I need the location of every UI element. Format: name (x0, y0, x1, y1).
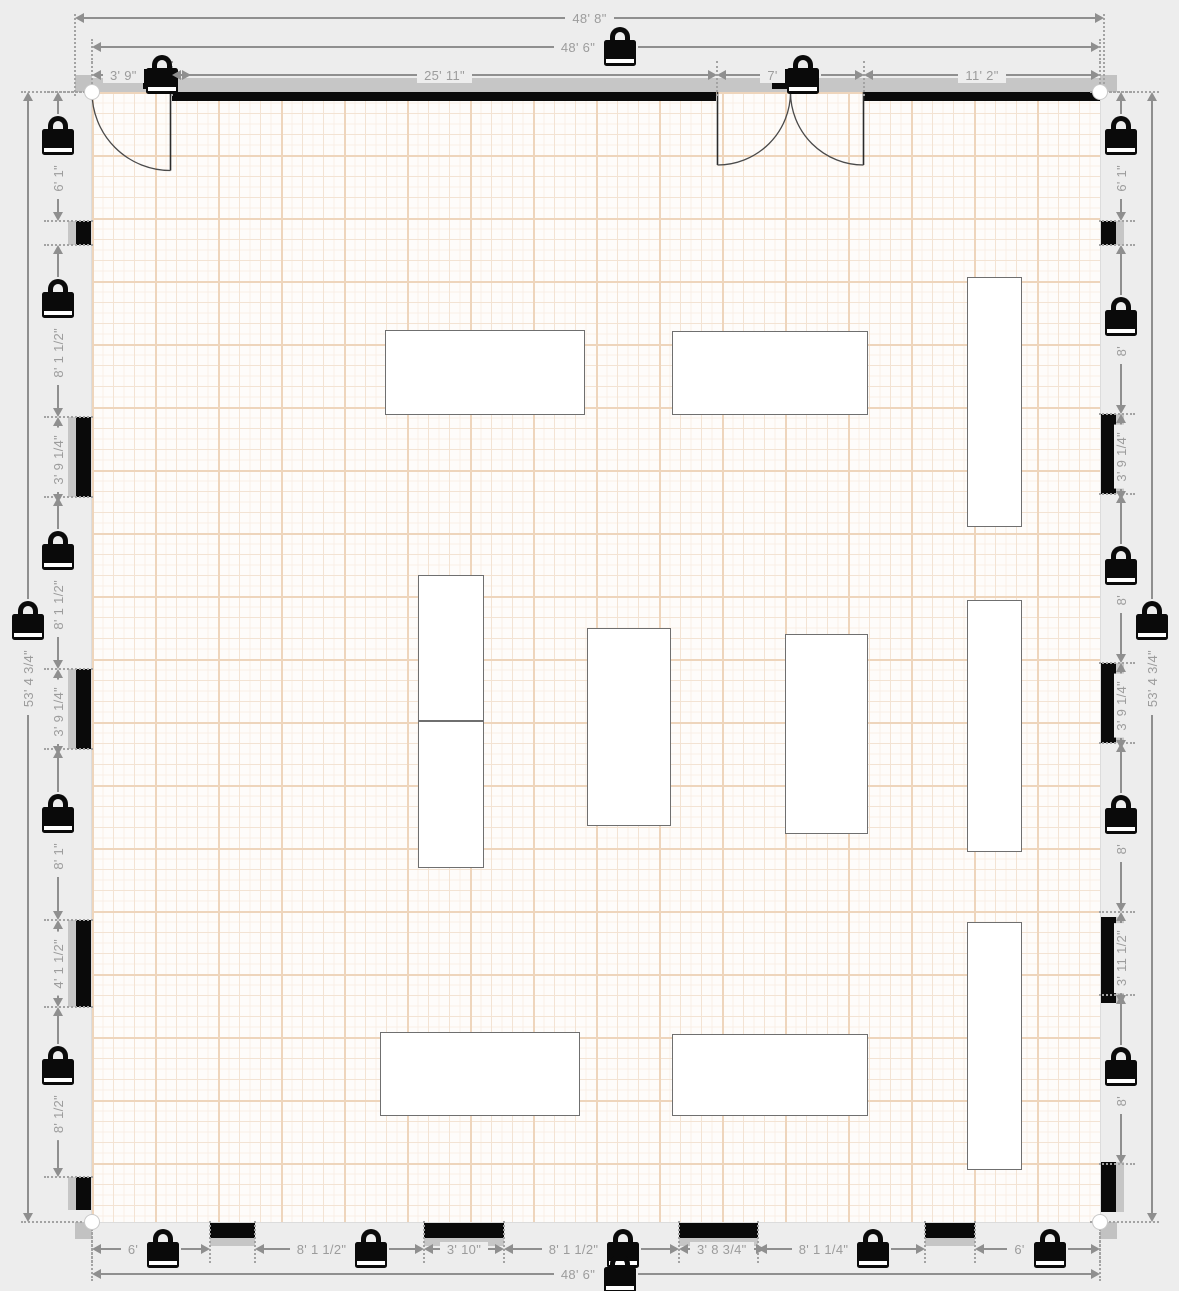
lock-body (1105, 808, 1137, 834)
lock-icon[interactable] (1105, 546, 1137, 586)
dimension-label[interactable]: 3' 11 1/2" (1114, 923, 1129, 993)
dimension-label[interactable]: 48' 6" (554, 40, 602, 55)
dimension-line (767, 1248, 792, 1250)
dimension-left-6: 8' 1" (44, 749, 72, 920)
dimension-line (1151, 101, 1153, 599)
furniture-rect[interactable] (785, 634, 868, 834)
lock-body (1105, 129, 1137, 155)
dimension-line (488, 1248, 495, 1250)
arrowhead (53, 1168, 63, 1177)
dimension-label[interactable]: 8' 1 1/2" (51, 573, 66, 637)
dimension-top-2: 48' 6" (92, 33, 1100, 61)
arrowhead (1116, 995, 1126, 1004)
furniture-rect[interactable] (418, 721, 484, 868)
dimension-label[interactable]: 8' (1114, 1089, 1129, 1113)
dimension-line (821, 74, 855, 76)
arrowhead (23, 92, 33, 101)
arrowhead (201, 1244, 210, 1254)
furniture-rect[interactable] (587, 628, 671, 826)
arrowhead (495, 1244, 504, 1254)
dimension-label[interactable]: 48' 8" (565, 11, 613, 26)
dimension-label[interactable]: 3' 9 1/4" (1114, 674, 1129, 738)
dimension-line (1120, 862, 1122, 903)
arrowhead (53, 998, 63, 1007)
dimension-label[interactable]: 8' 1" (51, 836, 66, 877)
dimension-line (57, 1016, 59, 1044)
furniture-rect[interactable] (385, 330, 585, 415)
floor-plan-canvas: 48' 8"48' 6"3' 9"25' 11"7'11' 2"6'8' 1 1… (0, 0, 1179, 1291)
dimension-left-4: 8' 1 1/2" (44, 497, 72, 669)
arrowhead (855, 70, 864, 80)
dimension-line (57, 1140, 59, 1168)
dimension-line (984, 1248, 1007, 1250)
dimension-label[interactable]: 6' (1007, 1242, 1031, 1257)
arrowhead (1116, 405, 1126, 414)
lock-body (42, 292, 74, 318)
dimension-right-4: 8' (1107, 494, 1135, 663)
dimension-line (638, 46, 1091, 48)
dimension-right-6: 8' (1107, 743, 1135, 912)
arrowhead (53, 245, 63, 254)
lock-icon[interactable] (787, 55, 819, 95)
lock-body (1105, 310, 1137, 336)
dimension-line (1151, 715, 1153, 1213)
lock-body (604, 1267, 636, 1291)
dimension-label[interactable]: 53' 4 3/4" (21, 643, 36, 714)
arrowhead (975, 1244, 984, 1254)
lock-icon[interactable] (42, 116, 74, 156)
dimension-bottom-8: 48' 6" (92, 1260, 1100, 1288)
dimension-left-5: 3' 9 1/4" (44, 669, 72, 749)
arrowhead (92, 42, 101, 52)
dimension-right-9: 53' 4 3/4" (1138, 92, 1166, 1222)
arrowhead (1116, 912, 1126, 921)
dimension-line (641, 1248, 670, 1250)
dimension-label[interactable]: 8' (1114, 837, 1129, 861)
lock-icon[interactable] (42, 531, 74, 571)
dimension-label[interactable]: 8' 1/2" (51, 1088, 66, 1140)
wall-pier-shadow (925, 1238, 975, 1246)
dimension-label[interactable]: 8' 1 1/2" (51, 321, 66, 385)
lock-icon[interactable] (1136, 601, 1168, 641)
corner-handle[interactable] (1092, 84, 1108, 100)
dimension-line (433, 1248, 440, 1250)
dimension-line (57, 877, 59, 911)
lock-body (42, 1059, 74, 1085)
wall-top-segment[interactable] (864, 92, 1100, 101)
dimension-line (389, 1248, 415, 1250)
wall-pier[interactable] (76, 1177, 91, 1210)
lock-icon[interactable] (1105, 116, 1137, 156)
arrowhead (717, 70, 726, 80)
arrowhead (1095, 13, 1104, 23)
dimension-label[interactable]: 3' 9 1/4" (51, 680, 66, 744)
dimension-top-4: 25' 11" (172, 61, 717, 89)
furniture-rect[interactable] (967, 922, 1022, 1170)
dimension-line (181, 74, 417, 76)
dimension-line (101, 46, 554, 48)
dimension-bottom-4: 8' 1 1/2" (504, 1235, 679, 1263)
dimension-line (57, 637, 59, 660)
dimension-label[interactable]: 8' (1114, 339, 1129, 363)
wall-pier[interactable] (1101, 221, 1116, 245)
dimension-bottom-3: 3' 10" (424, 1235, 504, 1263)
arrowhead (1116, 245, 1126, 254)
arrowhead (75, 13, 84, 23)
dimension-line (1006, 74, 1091, 76)
dimension-line (27, 715, 29, 1213)
dimension-line (614, 17, 1095, 19)
dimension-line (57, 758, 59, 792)
furniture-rect[interactable] (967, 600, 1022, 852)
dimension-top-3: 3' 9" (92, 61, 172, 89)
dimension-left-8: 8' 1/2" (44, 1007, 72, 1177)
dimension-line (57, 101, 59, 114)
arrowhead (255, 1244, 264, 1254)
dimension-label[interactable]: 6' (121, 1242, 145, 1257)
wall-pier[interactable] (76, 920, 91, 1007)
dimension-label[interactable]: 3' 9 1/4" (1114, 425, 1129, 489)
lock-icon[interactable] (604, 1254, 636, 1291)
dimension-right-8: 8' (1107, 995, 1135, 1164)
dimension-line (264, 1248, 290, 1250)
arrowhead (23, 1213, 33, 1222)
dimension-top-6: 11' 2" (864, 61, 1100, 89)
dimension-top-5: 7' (717, 61, 864, 89)
dimension-line (891, 1248, 916, 1250)
dimension-line (1120, 199, 1122, 212)
arrowhead (864, 70, 873, 80)
dimension-label[interactable]: 6' 1" (1114, 158, 1129, 199)
lock-body (42, 807, 74, 833)
dimension-line (726, 74, 760, 76)
dimension-line (57, 254, 59, 277)
dimension-label[interactable]: 3' 10" (440, 1242, 488, 1257)
dimension-line (873, 74, 958, 76)
dimension-label[interactable]: 3' 9 1/4" (51, 428, 66, 492)
arrowhead (53, 497, 63, 506)
dimension-line (84, 17, 565, 19)
arrowhead (1147, 1213, 1157, 1222)
dimension-label[interactable]: 3' 8 3/4" (690, 1242, 754, 1257)
lock-icon[interactable] (42, 279, 74, 319)
dimension-line (1120, 101, 1122, 114)
arrowhead (53, 669, 63, 678)
arrowhead (53, 408, 63, 417)
wall-pier-shadow (68, 1177, 76, 1210)
lock-body (1105, 1060, 1137, 1086)
dimension-label[interactable]: 8' 1 1/4" (792, 1242, 856, 1257)
dimension-left-7: 4' 1 1/2" (44, 920, 72, 1007)
arrowhead (1116, 494, 1126, 503)
arrowhead (758, 1244, 767, 1254)
arrowhead (1116, 92, 1126, 101)
arrowhead (1091, 42, 1100, 52)
dimension-right-3: 3' 9 1/4" (1107, 414, 1135, 494)
dimension-bottom-5: 3' 8 3/4" (679, 1235, 758, 1263)
dimension-label[interactable]: 6' 1" (51, 158, 66, 199)
wall-pier[interactable] (925, 1223, 975, 1238)
furniture-rect[interactable] (672, 1034, 868, 1116)
arrowhead (92, 70, 101, 80)
arrowhead (1116, 663, 1126, 672)
wall-pier[interactable] (76, 669, 91, 749)
arrowhead (53, 1007, 63, 1016)
dimension-line (1120, 503, 1122, 544)
lock-icon[interactable] (12, 601, 44, 641)
arrowhead (1116, 903, 1126, 912)
dimension-left-1: 6' 1" (44, 92, 72, 221)
wall-pier[interactable] (210, 1223, 255, 1238)
arrowhead (1116, 212, 1126, 221)
wall-pier[interactable] (76, 417, 91, 497)
dimension-top-1: 48' 8" (75, 4, 1104, 32)
dimension-bottom-7: 6' (975, 1235, 1100, 1263)
dimension-line (57, 506, 59, 529)
lock-icon[interactable] (42, 794, 74, 834)
arrowhead (1091, 1269, 1100, 1279)
dimension-line (101, 1248, 121, 1250)
furniture-rect[interactable] (418, 575, 484, 721)
dimension-right-5: 3' 9 1/4" (1107, 663, 1135, 743)
arrowhead (679, 1244, 688, 1254)
arrowhead (1147, 92, 1157, 101)
corner-handle[interactable] (84, 84, 100, 100)
corner-handle[interactable] (1092, 1214, 1108, 1230)
arrowhead (53, 417, 63, 426)
wall-pier-shadow (1116, 1162, 1124, 1212)
dimension-line (57, 385, 59, 408)
dimension-left-9: 53' 4 3/4" (14, 92, 42, 1222)
dimension-line (1120, 752, 1122, 793)
dimension-line (1068, 1248, 1091, 1250)
dimension-line (1120, 364, 1122, 405)
dimension-label[interactable]: 11' 2" (958, 68, 1005, 83)
arrowhead (424, 1244, 433, 1254)
dimension-label[interactable]: 8' (1114, 588, 1129, 612)
arrowhead (53, 920, 63, 929)
arrowhead (415, 1244, 424, 1254)
wall-pier-shadow (1116, 221, 1124, 245)
lock-icon[interactable] (1105, 795, 1137, 835)
arrowhead (1091, 70, 1100, 80)
lock-icon[interactable] (1105, 1047, 1137, 1087)
arrowhead (1116, 654, 1126, 663)
dimension-line (1120, 1004, 1122, 1045)
dimension-line (472, 74, 708, 76)
arrowhead (1116, 1155, 1126, 1164)
dimension-bottom-2: 8' 1 1/2" (255, 1235, 424, 1263)
lock-icon[interactable] (42, 1046, 74, 1086)
arrowhead (916, 1244, 925, 1254)
dimension-line (57, 199, 59, 212)
arrowhead (92, 1269, 101, 1279)
arrowhead (53, 660, 63, 669)
arrowhead (1116, 414, 1126, 423)
arrowhead (1116, 743, 1126, 752)
arrowhead (53, 212, 63, 221)
lock-body (42, 129, 74, 155)
dimension-left-3: 3' 9 1/4" (44, 417, 72, 497)
dimension-bottom-1: 6' (92, 1235, 210, 1263)
dimension-right-1: 6' 1" (1107, 92, 1135, 221)
arrowhead (708, 70, 717, 80)
dimension-label[interactable]: 48' 6" (554, 1267, 602, 1282)
arrowhead (172, 70, 181, 80)
dimension-label[interactable]: 25' 11" (417, 68, 472, 83)
wall-pier[interactable] (76, 221, 91, 245)
wall-pier-shadow (68, 221, 76, 245)
furniture-rect[interactable] (967, 277, 1022, 527)
arrowhead (53, 92, 63, 101)
dimension-line (1120, 613, 1122, 654)
arrowhead (1091, 1244, 1100, 1254)
dimension-label[interactable]: 7' (760, 68, 784, 83)
dimension-right-2: 8' (1107, 245, 1135, 414)
wall-pier-shadow (210, 1238, 255, 1246)
lock-body (1105, 559, 1137, 585)
furniture-rect[interactable] (672, 331, 868, 415)
lock-body (42, 544, 74, 570)
lock-icon[interactable] (1105, 297, 1137, 337)
arrowhead (53, 749, 63, 758)
dimension-line (1120, 254, 1122, 295)
dimension-line (27, 101, 29, 599)
arrowhead (92, 1244, 101, 1254)
corner-handle[interactable] (84, 1214, 100, 1230)
wall-top-segment[interactable] (172, 92, 716, 101)
dimension-line (181, 1248, 201, 1250)
dimension-left-2: 8' 1 1/2" (44, 245, 72, 417)
furniture-rect[interactable] (380, 1032, 580, 1116)
dimension-label[interactable]: 8' 1 1/2" (542, 1242, 606, 1257)
dimension-line (513, 1248, 542, 1250)
dimension-label[interactable]: 8' 1 1/2" (290, 1242, 354, 1257)
dimension-line (1120, 1114, 1122, 1155)
dimension-line (638, 1273, 1091, 1275)
dimension-label[interactable]: 4' 1 1/2" (51, 932, 66, 996)
lock-body (1136, 614, 1168, 640)
dimension-line (101, 1273, 554, 1275)
arrowhead (504, 1244, 513, 1254)
arrowhead (670, 1244, 679, 1254)
wall-pier[interactable] (1101, 1162, 1116, 1212)
lock-body (787, 68, 819, 94)
lock-body (12, 614, 44, 640)
dimension-bottom-6: 8' 1 1/4" (758, 1235, 925, 1263)
dimension-label[interactable]: 53' 4 3/4" (1145, 643, 1160, 714)
dimension-right-7: 3' 11 1/2" (1107, 912, 1135, 995)
arrowhead (53, 911, 63, 920)
dimension-label[interactable]: 3' 9" (103, 68, 144, 83)
